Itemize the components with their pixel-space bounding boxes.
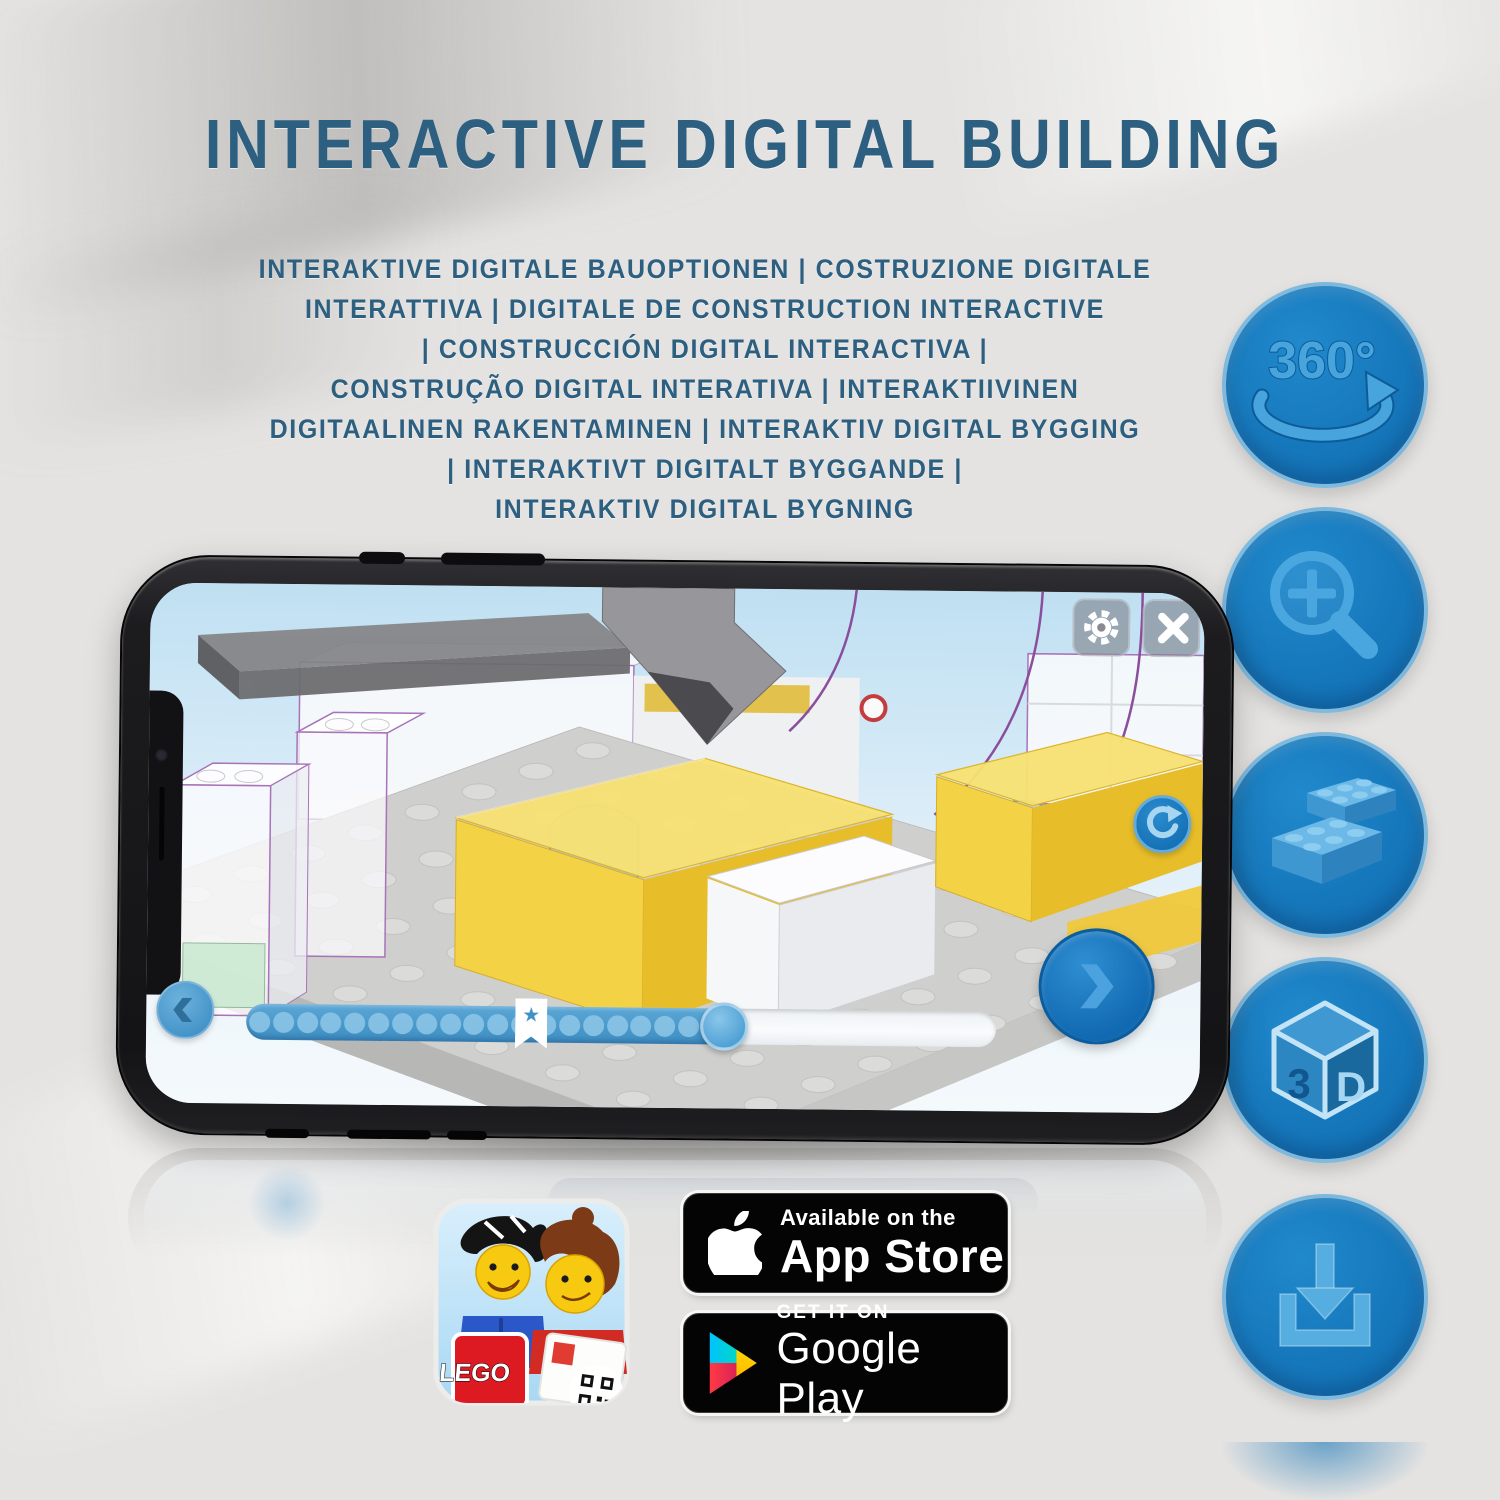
svg-text:3: 3 — [1287, 1060, 1310, 1107]
lego-app-icon[interactable]: LEGO — [433, 1198, 630, 1406]
app-store-tagline: Available on the — [780, 1205, 1004, 1231]
previous-step-button[interactable] — [156, 981, 215, 1040]
google-play-name: Google Play — [777, 1324, 1007, 1424]
download-circle-reflection — [1222, 1442, 1428, 1500]
settings-button[interactable] — [1072, 598, 1131, 657]
subtitle-line: INTERATTIVA | DIGITALE DE CONSTRUCTION I… — [100, 290, 1310, 330]
phone-port — [265, 1129, 309, 1138]
zoom-in-icon — [1250, 535, 1400, 685]
phone-port — [347, 1130, 431, 1140]
multilingual-subtitle: INTERAKTIVE DIGITALE BAUOPTIONEN | COSTR… — [100, 250, 1310, 530]
subtitle-line: CONSTRUÇÃO DIGITAL INTERATIVA | INTERAKT… — [100, 370, 1310, 410]
3d-cube-icon: 3 D — [1250, 985, 1400, 1135]
app-store-badge[interactable]: Available on the App Store — [683, 1193, 1008, 1293]
app-store-name: App Store — [780, 1231, 1004, 1281]
subtitle-line: INTERAKTIVE DIGITALE BAUOPTIONEN | COSTR… — [100, 250, 1310, 290]
reset-rotation-button[interactable] — [1133, 795, 1192, 854]
phone-side-button — [441, 553, 545, 566]
front-camera — [155, 749, 168, 762]
google-play-badge[interactable]: GET IT ON Google Play — [683, 1313, 1008, 1413]
google-play-icon — [706, 1331, 761, 1395]
subtitle-line: DIGITAALINEN RAKENTAMINEN | INTERAKTIV D… — [100, 410, 1310, 450]
speaker-slit — [159, 787, 165, 861]
apple-logo-icon — [708, 1211, 762, 1275]
svg-text:D: D — [1336, 1063, 1366, 1110]
svg-text:LEGO: LEGO — [438, 1359, 511, 1387]
feature-download — [1222, 1194, 1428, 1400]
rotate-icon — [1140, 802, 1184, 846]
smartphone: ★ — [115, 554, 1235, 1146]
download-icon — [1250, 1222, 1400, 1372]
google-play-tagline: GET IT ON — [777, 1302, 1007, 1324]
phone-side-button — [359, 552, 405, 564]
chevron-left-icon — [168, 993, 202, 1027]
subtitle-line: | CONSTRUCCIÓN DIGITAL INTERACTIVA | — [100, 330, 1310, 370]
chevron-right-icon — [1066, 956, 1127, 1017]
phone-notch — [145, 690, 183, 994]
next-step-button[interactable] — [1038, 928, 1155, 1045]
phone-port — [447, 1131, 487, 1140]
close-button[interactable] — [1142, 599, 1201, 658]
feature-bricks — [1222, 732, 1428, 938]
progress-thumb[interactable] — [700, 1002, 749, 1051]
phone-screen[interactable]: ★ — [145, 582, 1204, 1113]
feature-zoom — [1222, 507, 1428, 713]
gear-icon — [1074, 598, 1129, 657]
brick-icon — [1250, 760, 1400, 910]
page-title: INTERACTIVE DIGITAL BUILDING — [22, 104, 1467, 184]
subtitle-line: INTERAKTIV DIGITAL BYGNING — [100, 490, 1310, 530]
feature-3d: 3 D — [1222, 957, 1428, 1163]
close-icon — [1144, 599, 1199, 658]
subtitle-line: | INTERAKTIVT DIGITALT BYGGANDE | — [100, 450, 1310, 490]
progress-fill — [246, 1004, 726, 1045]
